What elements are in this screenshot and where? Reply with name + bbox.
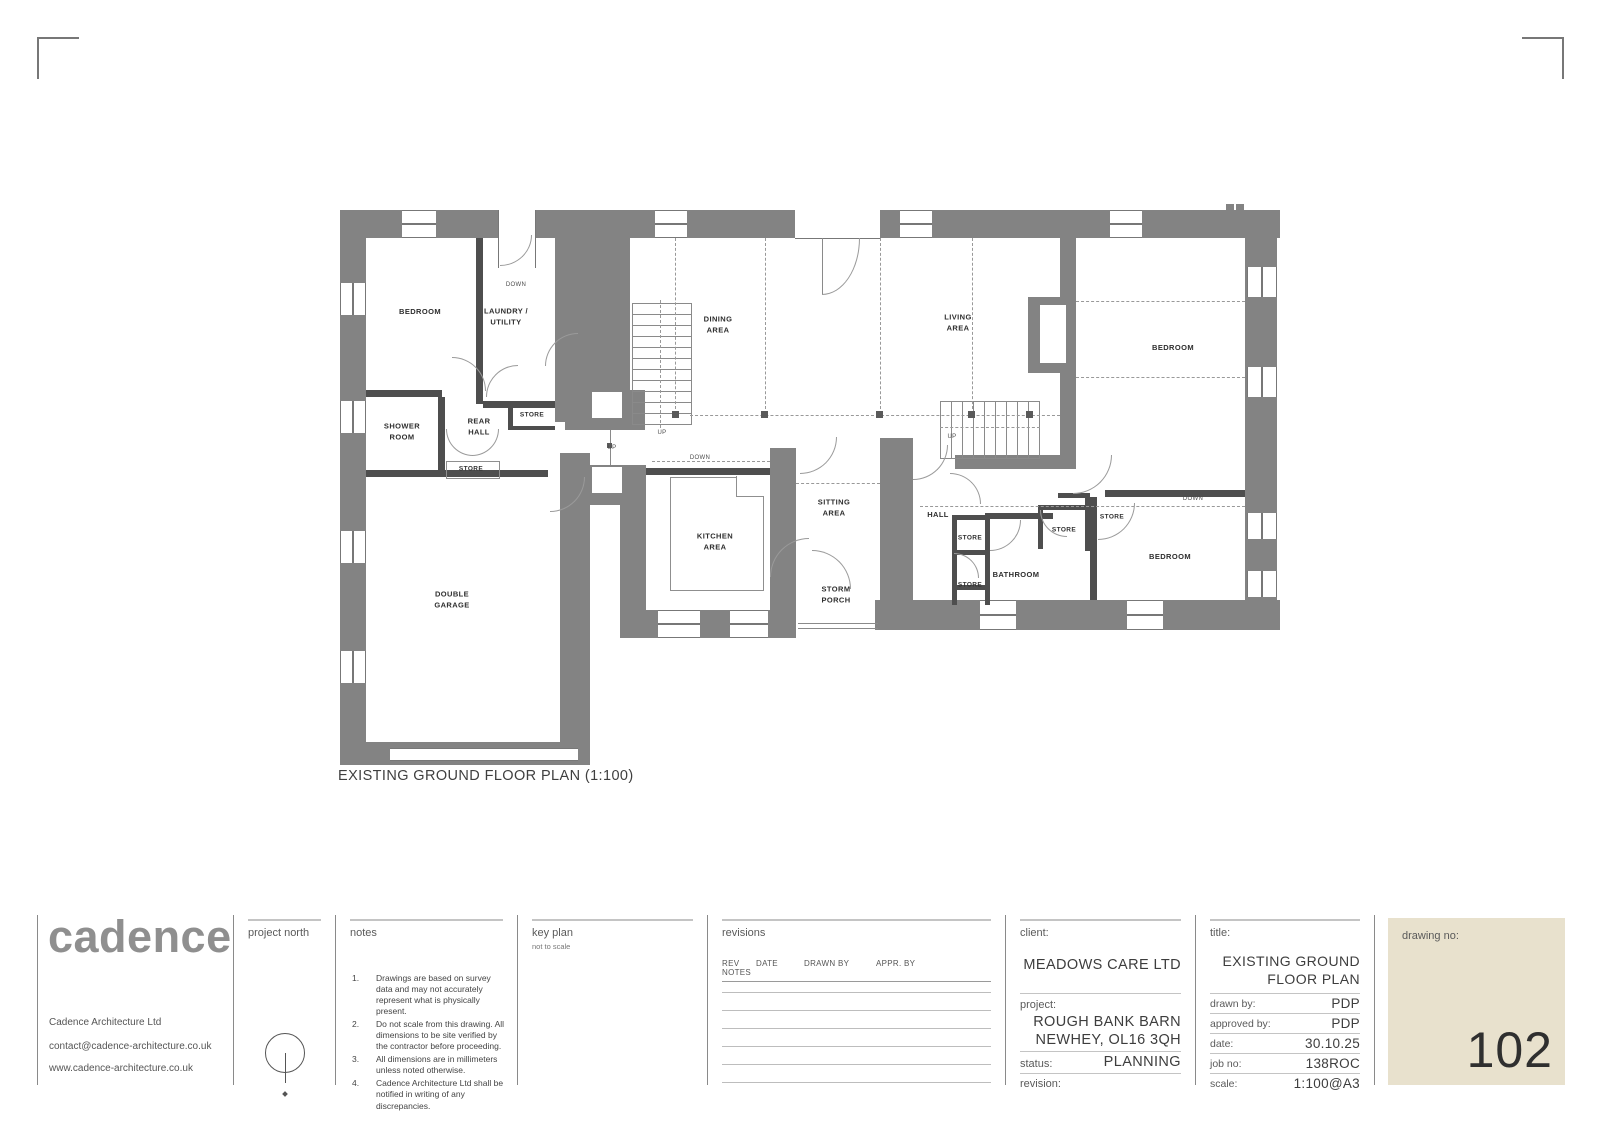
revision-empty-row	[722, 1047, 991, 1065]
title-field-row: drawn by:PDP	[1210, 993, 1360, 1013]
window	[340, 531, 366, 563]
title-label: title:	[1210, 927, 1230, 939]
revision-empty-row	[722, 1011, 991, 1029]
key-plan-subtitle: not to scale	[532, 942, 570, 951]
window	[658, 610, 700, 638]
stairs-line	[940, 427, 1040, 428]
door-arc	[913, 445, 948, 480]
client-section: client: MEADOWS CARE LTD project: ROUGH …	[1006, 915, 1196, 1085]
plan-annotation: UP	[948, 434, 957, 440]
note-item: 4.Cadence Architecture Ltd shall be noti…	[352, 1078, 507, 1111]
status-label: status:	[1020, 1058, 1052, 1070]
title-field-row: date:30.10.25	[1210, 1033, 1360, 1053]
window	[1247, 571, 1277, 597]
revisions-label: revisions	[722, 927, 765, 939]
garage-door	[390, 748, 578, 761]
dash-line	[796, 483, 880, 484]
field-label: job no:	[1210, 1058, 1242, 1070]
project-label: project:	[1020, 999, 1056, 1011]
beam-line	[690, 415, 1060, 416]
step-line	[798, 628, 878, 629]
note-item: 3.All dimensions are in millimeters unle…	[352, 1054, 507, 1076]
room-label: STORE	[958, 533, 982, 542]
revisions-rows	[722, 975, 991, 1083]
note-item: 2.Do not scale from this drawing. All di…	[352, 1019, 507, 1052]
room-label: STORE	[958, 580, 982, 589]
partition	[1090, 497, 1097, 600]
client-name: MEADOWS CARE LTD	[1023, 957, 1181, 973]
room-label: SITTING AREA	[818, 498, 850, 519]
status-value: PLANNING	[1104, 1054, 1181, 1070]
door-arc	[800, 437, 837, 474]
wall	[880, 438, 913, 613]
room-label: STORE	[520, 410, 544, 419]
notes-list: 1.Drawings are based on survey data and …	[352, 973, 507, 1114]
revision-empty-row	[722, 1029, 991, 1047]
beam-marker	[761, 411, 768, 418]
revision-label: revision:	[1020, 1078, 1061, 1090]
plan-annotation: UP	[658, 430, 667, 436]
company-website[interactable]: www.cadence-architecture.co.uk	[49, 1063, 193, 1074]
corner-mark-top-left	[37, 37, 79, 79]
wall	[340, 210, 580, 238]
field-value: 1:100@A3	[1294, 1076, 1360, 1091]
beam-line	[765, 238, 766, 414]
room-label: DOUBLE GARAGE	[434, 590, 469, 611]
title-field-row: approved by:PDP	[1210, 1013, 1360, 1033]
room-label: LAUNDRY / UTILITY	[484, 307, 528, 328]
beam-marker	[1026, 411, 1033, 418]
divider	[722, 919, 991, 921]
wall-recess	[592, 392, 622, 418]
title-fields: drawn by:PDPapproved by:PDPdate:30.10.25…	[1196, 993, 1374, 1093]
window	[340, 401, 366, 433]
room-label: BATHROOM	[993, 570, 1040, 581]
window	[655, 210, 687, 238]
door-arc	[812, 550, 851, 589]
room-label: STORE	[459, 464, 483, 473]
beam-line	[1076, 377, 1245, 378]
titleblock-logo-section: cadence Cadence Architecture Ltd contact…	[37, 915, 234, 1085]
corner-mark-top-right	[1522, 37, 1564, 79]
field-label: date:	[1210, 1038, 1233, 1050]
key-plan-section: key plan not to scale	[518, 915, 708, 1085]
room-label: DINING AREA	[704, 315, 733, 336]
notes-label: notes	[350, 927, 377, 939]
floor-plan: BEDROOMLAUNDRY / UTILITYSHOWER ROOMREAR …	[340, 205, 1285, 770]
vent-tick	[1226, 204, 1234, 211]
field-label: drawn by:	[1210, 998, 1256, 1010]
stairs	[940, 401, 1040, 459]
revisions-column-header: APPR. BY	[876, 959, 938, 968]
field-value: 30.10.25	[1305, 1036, 1360, 1051]
step-line	[798, 623, 878, 624]
partition	[366, 390, 442, 397]
field-value: PDP	[1331, 996, 1360, 1011]
door-arc	[545, 333, 578, 366]
window	[900, 210, 932, 238]
company-email[interactable]: contact@cadence-architecture.co.uk	[49, 1041, 211, 1052]
field-value: PDP	[1331, 1016, 1360, 1031]
drawing-sheet: BEDROOMLAUNDRY / UTILITYSHOWER ROOMREAR …	[0, 0, 1600, 1131]
room-label: BEDROOM	[1152, 343, 1194, 354]
door-opening	[795, 210, 880, 239]
note-item: 1.Drawings are based on survey data and …	[352, 973, 507, 1017]
plan-annotation: DOWN	[1183, 496, 1203, 502]
north-compass-icon	[265, 1033, 305, 1073]
divider	[248, 919, 321, 921]
compass-tip	[282, 1091, 288, 1097]
plan-annotation: DOWN	[506, 282, 526, 288]
revision-empty-row	[722, 993, 991, 1011]
room-label: SHOWER ROOM	[384, 422, 420, 443]
dash-line	[652, 461, 770, 462]
beam-marker	[672, 411, 679, 418]
room-label: BEDROOM	[399, 307, 441, 318]
beam-line	[972, 238, 973, 414]
cadence-logo: cadence	[48, 911, 232, 963]
revision-empty-row	[722, 1065, 991, 1083]
divider	[532, 919, 693, 921]
room-label: BEDROOM	[1149, 552, 1191, 563]
divider	[1020, 1073, 1181, 1074]
notes-section: notes 1.Drawings are based on survey dat…	[336, 915, 518, 1085]
window	[730, 610, 768, 638]
field-label: scale:	[1210, 1078, 1237, 1090]
revisions-column-header: DRAWN BY	[804, 959, 876, 968]
window	[1110, 210, 1142, 238]
door-arc	[486, 365, 518, 397]
company-name: Cadence Architecture Ltd	[49, 1017, 161, 1028]
wall	[875, 600, 1280, 630]
window	[402, 210, 436, 238]
door-arc	[822, 238, 860, 295]
partition	[508, 408, 513, 428]
client-label: client:	[1020, 927, 1049, 939]
room-label: HALL	[927, 510, 949, 521]
divider	[350, 919, 503, 921]
door-arc	[954, 553, 979, 578]
key-plan-label: key plan	[532, 927, 573, 939]
field-value: 138ROC	[1306, 1056, 1360, 1071]
window	[1247, 267, 1277, 297]
window	[1247, 513, 1277, 539]
beam-line	[675, 238, 676, 414]
stairs-line	[660, 300, 661, 428]
divider	[1210, 919, 1360, 921]
divider	[1020, 919, 1181, 921]
window	[340, 651, 366, 683]
revisions-section: revisions REVDATEDRAWN BYAPPR. BYNOTES	[708, 915, 1006, 1085]
beam-marker	[968, 411, 975, 418]
partition	[483, 401, 555, 408]
field-label: approved by:	[1210, 1018, 1271, 1030]
plan-annotation: UP	[608, 445, 617, 451]
beam-marker	[876, 411, 883, 418]
vent-tick	[1236, 204, 1244, 211]
partition	[646, 468, 770, 475]
divider	[1020, 993, 1181, 994]
revisions-column-header: DATE	[756, 959, 804, 968]
compass-needle	[285, 1053, 286, 1083]
window	[1127, 600, 1163, 630]
project-name: ROUGH BANK BARN NEWHEY, OL16 3QH	[1033, 1013, 1181, 1049]
drawing-title: EXISTING GROUND FLOOR PLAN	[1223, 953, 1360, 988]
partition	[508, 426, 555, 430]
room-label: STORE	[1100, 512, 1124, 521]
wall	[580, 210, 630, 400]
door-arc	[950, 473, 981, 504]
room-label: STORE	[1052, 525, 1076, 534]
title-field-row: scale:1:100@A3	[1210, 1073, 1360, 1093]
project-north-label: project north	[248, 927, 309, 939]
chimney-recess	[1040, 305, 1066, 363]
partition	[1105, 490, 1245, 497]
stairs	[632, 303, 692, 425]
drawing-no-label: drawing no:	[1402, 930, 1459, 942]
window	[340, 283, 366, 315]
revisions-column-header: REV	[722, 959, 756, 968]
door-arc	[1073, 455, 1112, 494]
dash-line	[920, 506, 1245, 507]
drawing-number-panel: drawing no: 102	[1388, 918, 1565, 1085]
divider	[1020, 1051, 1181, 1052]
door-arc	[990, 520, 1021, 551]
title-field-row: job no:138ROC	[1210, 1053, 1360, 1073]
title-section: title: EXISTING GROUND FLOOR PLAN drawn …	[1196, 915, 1375, 1085]
beam-line	[880, 238, 881, 414]
beam-line	[1076, 301, 1245, 302]
room-label: LIVING AREA	[944, 313, 971, 334]
revision-empty-row	[722, 975, 991, 993]
plan-annotation: DOWN	[690, 455, 710, 461]
room-label: STORM PORCH	[821, 585, 850, 606]
window	[1247, 367, 1277, 397]
wall	[620, 610, 796, 638]
wall-recess	[592, 467, 622, 493]
plan-caption: EXISTING GROUND FLOOR PLAN (1:100)	[338, 768, 634, 784]
room-label: KITCHEN AREA	[697, 532, 733, 553]
project-north-section: project north	[234, 915, 336, 1085]
kitchen-counter-notch	[736, 476, 764, 497]
room-label: REAR HALL	[468, 417, 491, 438]
partition	[438, 397, 445, 477]
drawing-no-value: 102	[1467, 1021, 1553, 1079]
